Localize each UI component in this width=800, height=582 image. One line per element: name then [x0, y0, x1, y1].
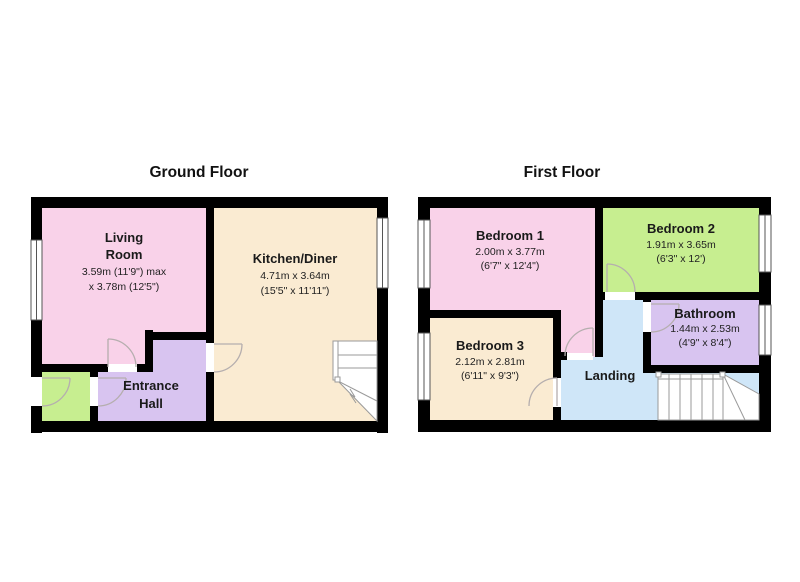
bedroom-3-floor	[430, 318, 553, 420]
wall-outer-bottom	[418, 420, 771, 432]
ground-floor-plan: Ground Floor	[31, 164, 388, 433]
living-room-dims-1: 3.59m (11'9") max	[82, 266, 167, 278]
porch-floor	[42, 372, 90, 421]
landing-floor-column	[603, 300, 643, 365]
bedroom-2-label: Bedroom 2	[647, 221, 715, 236]
first-floor-plan: First Floor	[418, 164, 771, 432]
bathroom-dims-1: 1.44m x 2.53m	[670, 323, 740, 335]
floor-plan-canvas: Ground Floor	[0, 0, 800, 582]
bedroom-1-label: Bedroom 1	[476, 228, 544, 243]
living-room-window	[31, 240, 42, 320]
bathroom-dims-2: (4'9" x 8'4")	[679, 337, 732, 349]
wall-hall-notch	[145, 330, 153, 372]
living-room-label-2: Room	[106, 247, 143, 262]
door-opening	[31, 377, 42, 406]
bedroom-1-dims-2: (6'7" x 12'4")	[481, 260, 540, 272]
stairs-newel	[335, 377, 340, 382]
kitchen-diner-dims-1: 4.71m x 3.64m	[260, 270, 330, 282]
ground-floor-title: Ground Floor	[149, 164, 248, 181]
door-opening	[605, 292, 635, 300]
wall-outer-bottom	[31, 421, 388, 432]
door-opening	[567, 353, 593, 360]
floorplan-page: Ground Floor	[0, 0, 800, 582]
wall-outer-top	[418, 197, 771, 208]
door-opening	[206, 343, 214, 372]
entrance-hall-label-2: Hall	[139, 396, 163, 411]
stairs-stringer	[333, 341, 338, 380]
bedroom-2-dims-2: (6'3" x 12')	[656, 253, 705, 265]
bathroom-window	[759, 305, 771, 355]
bathroom-label: Bathroom	[674, 306, 735, 321]
living-room-dims-2: x 3.78m (12'5")	[89, 281, 160, 293]
bedroom-1-window	[418, 220, 430, 288]
door-opening	[643, 302, 651, 332]
stairs-newel-right	[720, 372, 725, 377]
kitchen-diner-dims-2: (15'5" x 11'11")	[261, 285, 330, 297]
wall-outer-top	[31, 197, 388, 208]
living-room-label: Living	[105, 230, 143, 245]
bedroom-3-window	[418, 333, 430, 400]
bedroom-2-window	[759, 215, 771, 272]
door-opening	[108, 364, 137, 372]
bedroom-3-dims-1: 2.12m x 2.81m	[455, 356, 525, 368]
landing-label: Landing	[585, 368, 636, 383]
landing-floor-left	[561, 357, 643, 420]
stairs-newel-left	[656, 372, 661, 377]
bedroom-1-dims-1: 2.00m x 3.77m	[475, 246, 545, 258]
wall-kitchen-divider	[206, 208, 214, 421]
wall-bedroom1-bedroom2-divider	[595, 208, 603, 357]
wall-hall-top	[153, 332, 206, 340]
bedroom-2-dims-1: 1.91m x 3.65m	[646, 239, 716, 251]
bedroom-3-dims-2: (6'11" x 9'3")	[461, 370, 519, 382]
kitchen-diner-label: Kitchen/Diner	[253, 251, 338, 266]
kitchen-window	[377, 218, 388, 288]
door-opening	[90, 377, 98, 406]
entrance-hall-label: Entrance	[123, 378, 179, 393]
wall-bedroom1-bedroom3	[430, 310, 561, 318]
bedroom-3-label: Bedroom 3	[456, 338, 524, 353]
first-floor-title: First Floor	[524, 164, 601, 181]
